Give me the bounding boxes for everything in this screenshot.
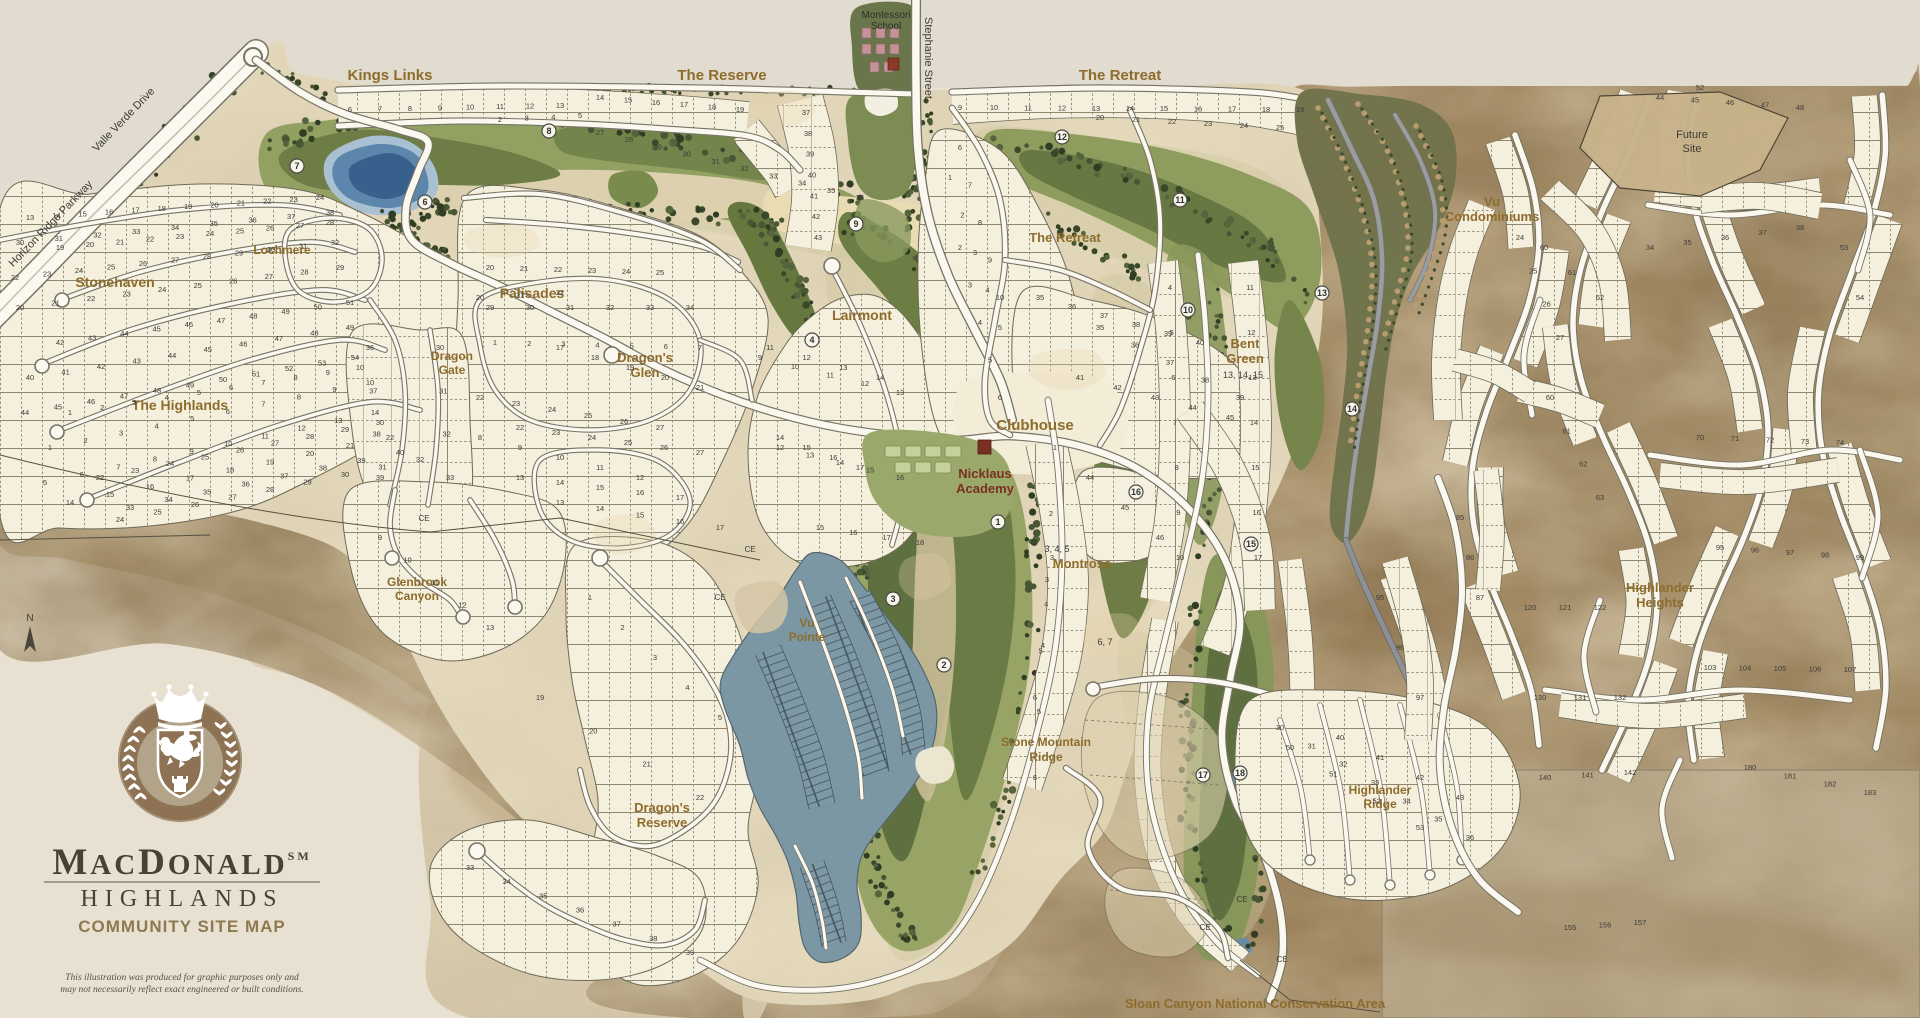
svg-text:43: 43 bbox=[1456, 793, 1464, 802]
svg-text:11: 11 bbox=[826, 371, 834, 380]
svg-text:34: 34 bbox=[686, 303, 694, 312]
svg-text:7: 7 bbox=[698, 343, 702, 352]
svg-text:4: 4 bbox=[809, 335, 814, 345]
svg-text:Highlander: Highlander bbox=[1349, 783, 1412, 797]
svg-text:29: 29 bbox=[341, 425, 349, 434]
svg-text:Heights: Heights bbox=[1636, 595, 1684, 610]
svg-text:27: 27 bbox=[1556, 333, 1564, 342]
svg-text:9: 9 bbox=[988, 256, 992, 265]
svg-text:12: 12 bbox=[636, 473, 644, 482]
svg-text:73: 73 bbox=[1801, 437, 1809, 446]
svg-text:Green: Green bbox=[1226, 351, 1264, 366]
svg-text:52: 52 bbox=[1373, 796, 1381, 805]
svg-text:1: 1 bbox=[995, 517, 1000, 527]
svg-text:MACDONALDSM: MACDONALDSM bbox=[52, 842, 311, 883]
svg-text:11: 11 bbox=[1024, 103, 1032, 112]
svg-text:Canyon: Canyon bbox=[395, 589, 439, 603]
svg-text:N: N bbox=[26, 613, 33, 624]
svg-text:25: 25 bbox=[201, 452, 209, 461]
svg-text:COMMUNITY SITE MAP: COMMUNITY SITE MAP bbox=[78, 917, 286, 936]
svg-text:47: 47 bbox=[1761, 101, 1769, 110]
svg-text:8: 8 bbox=[478, 433, 482, 442]
svg-text:15: 15 bbox=[79, 209, 87, 218]
svg-text:11: 11 bbox=[1175, 195, 1185, 205]
svg-text:43: 43 bbox=[814, 233, 822, 242]
svg-text:47: 47 bbox=[120, 392, 128, 401]
svg-text:15: 15 bbox=[1246, 539, 1256, 549]
svg-text:6: 6 bbox=[348, 105, 352, 114]
svg-text:8: 8 bbox=[294, 373, 298, 382]
svg-text:5: 5 bbox=[190, 414, 194, 423]
svg-text:44: 44 bbox=[168, 351, 176, 360]
svg-text:41: 41 bbox=[1376, 753, 1384, 762]
svg-text:15: 15 bbox=[816, 523, 824, 532]
svg-text:37: 37 bbox=[287, 212, 295, 221]
svg-text:34: 34 bbox=[1403, 796, 1411, 805]
svg-text:140: 140 bbox=[1539, 773, 1552, 782]
svg-text:38: 38 bbox=[649, 934, 657, 943]
svg-text:32: 32 bbox=[443, 430, 451, 439]
svg-text:CE: CE bbox=[418, 514, 429, 523]
svg-text:18: 18 bbox=[708, 103, 716, 112]
svg-text:70: 70 bbox=[1696, 433, 1704, 442]
svg-text:5: 5 bbox=[578, 111, 582, 120]
svg-text:38: 38 bbox=[319, 464, 327, 473]
svg-text:5: 5 bbox=[197, 388, 201, 397]
svg-text:48: 48 bbox=[249, 311, 257, 320]
svg-text:19: 19 bbox=[266, 457, 274, 466]
svg-text:23: 23 bbox=[552, 428, 560, 437]
svg-text:36: 36 bbox=[248, 216, 256, 225]
svg-text:130: 130 bbox=[1534, 693, 1547, 702]
svg-text:Academy: Academy bbox=[956, 481, 1015, 496]
svg-text:32: 32 bbox=[1339, 760, 1347, 769]
svg-text:15: 15 bbox=[866, 466, 874, 475]
svg-text:4: 4 bbox=[551, 112, 555, 121]
svg-text:22: 22 bbox=[96, 473, 104, 482]
svg-text:155: 155 bbox=[1564, 923, 1577, 932]
svg-text:62: 62 bbox=[1596, 293, 1604, 302]
svg-text:22: 22 bbox=[476, 393, 484, 402]
svg-text:25: 25 bbox=[1276, 123, 1284, 132]
svg-text:12: 12 bbox=[776, 443, 784, 452]
svg-text:34: 34 bbox=[1646, 243, 1654, 252]
svg-text:36: 36 bbox=[1068, 302, 1076, 311]
svg-text:32: 32 bbox=[416, 455, 424, 464]
svg-text:36: 36 bbox=[366, 343, 374, 352]
svg-text:may not necessarily reflect ex: may not necessarily reflect exact engine… bbox=[60, 984, 303, 995]
svg-text:14: 14 bbox=[776, 433, 784, 442]
svg-text:22: 22 bbox=[554, 265, 562, 274]
svg-text:CE: CE bbox=[1276, 955, 1287, 964]
svg-text:41: 41 bbox=[810, 191, 818, 200]
svg-text:Reserve: Reserve bbox=[637, 815, 688, 830]
svg-text:15: 15 bbox=[636, 511, 644, 520]
svg-text:12: 12 bbox=[458, 601, 466, 610]
svg-text:181: 181 bbox=[1784, 771, 1797, 780]
svg-text:31: 31 bbox=[566, 303, 574, 312]
svg-text:3: 3 bbox=[653, 653, 657, 662]
svg-text:45: 45 bbox=[1691, 96, 1699, 105]
svg-text:32: 32 bbox=[93, 231, 101, 240]
svg-text:36: 36 bbox=[1131, 341, 1139, 350]
svg-text:18: 18 bbox=[1235, 768, 1245, 778]
svg-text:87: 87 bbox=[1476, 593, 1484, 602]
svg-text:46: 46 bbox=[1156, 533, 1164, 542]
svg-text:37: 37 bbox=[280, 472, 288, 481]
svg-text:141: 141 bbox=[1581, 771, 1594, 780]
svg-text:10: 10 bbox=[1183, 305, 1193, 315]
svg-text:8: 8 bbox=[153, 455, 157, 464]
svg-text:28: 28 bbox=[203, 252, 211, 261]
svg-text:42: 42 bbox=[812, 212, 820, 221]
svg-text:35: 35 bbox=[1683, 238, 1691, 247]
svg-text:11: 11 bbox=[766, 343, 774, 352]
svg-text:25: 25 bbox=[584, 411, 592, 420]
svg-text:6: 6 bbox=[1033, 693, 1037, 702]
svg-text:9: 9 bbox=[518, 443, 522, 452]
svg-text:27: 27 bbox=[265, 272, 273, 281]
svg-text:60: 60 bbox=[1546, 393, 1554, 402]
svg-text:26: 26 bbox=[1543, 300, 1551, 309]
svg-text:28: 28 bbox=[625, 135, 633, 144]
svg-text:33: 33 bbox=[646, 303, 654, 312]
svg-text:14: 14 bbox=[1347, 404, 1357, 414]
svg-text:16: 16 bbox=[636, 488, 644, 497]
svg-text:17: 17 bbox=[186, 474, 194, 483]
svg-text:2: 2 bbox=[960, 211, 964, 220]
svg-text:14: 14 bbox=[596, 504, 604, 513]
svg-text:99: 99 bbox=[1856, 553, 1864, 562]
svg-text:Vu: Vu bbox=[1484, 194, 1500, 209]
svg-text:21: 21 bbox=[346, 441, 354, 450]
svg-text:41: 41 bbox=[1076, 373, 1084, 382]
svg-text:107: 107 bbox=[1844, 665, 1857, 674]
svg-text:21: 21 bbox=[696, 383, 704, 392]
svg-text:13: 13 bbox=[806, 451, 814, 460]
svg-text:3: 3 bbox=[132, 398, 136, 407]
svg-text:26: 26 bbox=[266, 224, 274, 233]
svg-text:3: 3 bbox=[968, 281, 972, 290]
svg-text:30: 30 bbox=[436, 343, 444, 352]
svg-text:14: 14 bbox=[1250, 418, 1258, 427]
svg-text:31: 31 bbox=[299, 242, 307, 251]
svg-text:120: 120 bbox=[1524, 603, 1537, 612]
svg-text:37: 37 bbox=[1758, 228, 1766, 237]
svg-text:35: 35 bbox=[827, 186, 835, 195]
svg-text:26: 26 bbox=[620, 417, 628, 426]
svg-text:96: 96 bbox=[1751, 546, 1759, 555]
svg-text:10: 10 bbox=[224, 439, 232, 448]
svg-text:39: 39 bbox=[806, 150, 814, 159]
svg-text:26: 26 bbox=[236, 446, 244, 455]
svg-text:16: 16 bbox=[105, 208, 113, 217]
svg-text:9: 9 bbox=[958, 103, 962, 112]
svg-text:Pointe: Pointe bbox=[789, 630, 826, 644]
svg-text:20: 20 bbox=[589, 726, 597, 735]
svg-text:48: 48 bbox=[1796, 103, 1804, 112]
svg-text:16: 16 bbox=[1194, 104, 1202, 113]
svg-text:42: 42 bbox=[1416, 773, 1424, 782]
svg-text:54: 54 bbox=[351, 353, 359, 362]
svg-text:43: 43 bbox=[133, 356, 141, 365]
svg-text:26: 26 bbox=[660, 443, 668, 452]
svg-text:18: 18 bbox=[1262, 105, 1270, 114]
svg-text:36: 36 bbox=[242, 479, 250, 488]
svg-text:10: 10 bbox=[403, 556, 411, 565]
svg-text:13: 13 bbox=[1092, 104, 1100, 113]
svg-text:60: 60 bbox=[1540, 243, 1548, 252]
svg-text:86: 86 bbox=[1466, 553, 1474, 562]
svg-text:Ridge: Ridge bbox=[1029, 750, 1063, 764]
svg-text:39: 39 bbox=[357, 456, 365, 465]
svg-text:24: 24 bbox=[166, 459, 174, 468]
svg-text:Palisades: Palisades bbox=[500, 285, 565, 301]
svg-text:25: 25 bbox=[107, 263, 115, 272]
svg-text:24: 24 bbox=[622, 267, 630, 276]
svg-text:4: 4 bbox=[1168, 283, 1172, 292]
svg-text:16: 16 bbox=[146, 482, 154, 491]
svg-text:19: 19 bbox=[736, 105, 744, 114]
svg-text:5: 5 bbox=[1039, 646, 1043, 655]
svg-text:Gate: Gate bbox=[439, 363, 466, 377]
svg-text:23: 23 bbox=[588, 266, 596, 275]
svg-text:44: 44 bbox=[120, 329, 128, 338]
svg-text:20: 20 bbox=[476, 293, 484, 302]
svg-text:2: 2 bbox=[620, 623, 624, 632]
svg-text:13: 13 bbox=[26, 213, 34, 222]
svg-text:71: 71 bbox=[1731, 434, 1739, 443]
svg-text:11: 11 bbox=[596, 463, 604, 472]
svg-text:23: 23 bbox=[1204, 119, 1212, 128]
svg-text:30: 30 bbox=[376, 418, 384, 427]
svg-text:1: 1 bbox=[588, 593, 592, 602]
svg-text:6: 6 bbox=[422, 197, 427, 207]
svg-text:25: 25 bbox=[153, 508, 161, 517]
svg-text:4: 4 bbox=[155, 421, 159, 430]
svg-text:50: 50 bbox=[219, 375, 227, 384]
svg-text:38: 38 bbox=[1132, 320, 1140, 329]
svg-text:16: 16 bbox=[896, 473, 904, 482]
svg-text:7: 7 bbox=[968, 181, 972, 190]
svg-text:13: 13 bbox=[1249, 373, 1257, 382]
svg-text:5: 5 bbox=[998, 323, 1002, 332]
svg-text:16: 16 bbox=[676, 517, 684, 526]
svg-text:38: 38 bbox=[326, 208, 334, 217]
svg-text:48: 48 bbox=[153, 386, 161, 395]
svg-text:The Highlands: The Highlands bbox=[132, 397, 229, 413]
svg-text:46: 46 bbox=[1726, 98, 1734, 107]
svg-text:35: 35 bbox=[1096, 323, 1104, 332]
svg-text:51: 51 bbox=[1329, 770, 1337, 779]
svg-text:24: 24 bbox=[1240, 121, 1248, 130]
svg-text:46: 46 bbox=[87, 397, 95, 406]
svg-text:48: 48 bbox=[310, 329, 318, 338]
svg-text:61: 61 bbox=[1568, 268, 1576, 277]
svg-text:14: 14 bbox=[52, 211, 60, 220]
svg-text:20: 20 bbox=[486, 263, 494, 272]
svg-text:103: 103 bbox=[1704, 663, 1717, 672]
svg-text:4: 4 bbox=[985, 286, 989, 295]
svg-text:32: 32 bbox=[740, 164, 748, 173]
svg-text:40: 40 bbox=[396, 448, 404, 457]
svg-text:Future: Future bbox=[1676, 129, 1708, 141]
svg-text:85: 85 bbox=[1456, 513, 1464, 522]
svg-text:2: 2 bbox=[1049, 509, 1053, 518]
svg-text:10: 10 bbox=[791, 362, 799, 371]
svg-text:3: 3 bbox=[561, 340, 565, 349]
svg-text:14: 14 bbox=[556, 478, 564, 487]
svg-text:182: 182 bbox=[1824, 780, 1837, 789]
svg-text:12: 12 bbox=[803, 353, 811, 362]
svg-text:17: 17 bbox=[1254, 553, 1262, 562]
svg-text:3: 3 bbox=[890, 594, 895, 604]
svg-text:72: 72 bbox=[1766, 436, 1774, 445]
svg-text:10: 10 bbox=[996, 293, 1004, 302]
svg-text:45: 45 bbox=[54, 403, 62, 412]
svg-text:6: 6 bbox=[80, 470, 84, 479]
svg-text:7: 7 bbox=[1173, 418, 1177, 427]
svg-text:46: 46 bbox=[239, 340, 247, 349]
svg-text:Montrose: Montrose bbox=[1053, 556, 1112, 571]
svg-text:106: 106 bbox=[1809, 665, 1822, 674]
svg-text:29: 29 bbox=[303, 478, 311, 487]
svg-text:29: 29 bbox=[336, 263, 344, 272]
svg-text:7: 7 bbox=[294, 161, 299, 171]
svg-text:25: 25 bbox=[236, 226, 244, 235]
svg-text:6: 6 bbox=[664, 342, 668, 351]
svg-text:39: 39 bbox=[686, 948, 694, 957]
svg-text:35: 35 bbox=[203, 487, 211, 496]
svg-text:20: 20 bbox=[306, 449, 314, 458]
svg-text:Dragon's: Dragon's bbox=[634, 800, 690, 815]
svg-text:4: 4 bbox=[1044, 600, 1048, 609]
svg-text:22: 22 bbox=[146, 235, 154, 244]
svg-text:47: 47 bbox=[217, 316, 225, 325]
svg-text:45: 45 bbox=[1226, 413, 1234, 422]
svg-text:10: 10 bbox=[356, 363, 364, 372]
svg-text:3: 3 bbox=[1050, 553, 1054, 562]
svg-text:Condominiums: Condominiums bbox=[1445, 209, 1540, 224]
svg-text:28: 28 bbox=[266, 485, 274, 494]
svg-text:2: 2 bbox=[498, 115, 502, 124]
svg-text:21: 21 bbox=[520, 264, 528, 273]
svg-text:School: School bbox=[871, 21, 902, 32]
svg-text:24: 24 bbox=[588, 433, 596, 442]
svg-text:Stonehaven: Stonehaven bbox=[75, 274, 154, 290]
svg-text:37: 37 bbox=[802, 108, 810, 117]
svg-text:37: 37 bbox=[1100, 311, 1108, 320]
svg-text:34: 34 bbox=[171, 223, 179, 232]
svg-text:12: 12 bbox=[1058, 104, 1066, 113]
svg-text:8: 8 bbox=[1175, 463, 1179, 472]
svg-text:24: 24 bbox=[548, 405, 556, 414]
svg-text:54: 54 bbox=[1856, 293, 1864, 302]
svg-text:27: 27 bbox=[596, 128, 604, 137]
svg-text:27: 27 bbox=[696, 448, 704, 457]
svg-text:23: 23 bbox=[123, 290, 131, 299]
svg-text:38: 38 bbox=[1796, 223, 1804, 232]
svg-text:12: 12 bbox=[526, 102, 534, 111]
svg-text:14: 14 bbox=[596, 93, 604, 102]
svg-text:62: 62 bbox=[1579, 460, 1587, 469]
svg-text:Bent: Bent bbox=[1231, 336, 1261, 351]
svg-text:39: 39 bbox=[1236, 393, 1244, 402]
svg-text:33: 33 bbox=[1371, 778, 1379, 787]
svg-text:97: 97 bbox=[1786, 548, 1794, 557]
svg-text:14: 14 bbox=[836, 458, 844, 467]
svg-text:38: 38 bbox=[1201, 376, 1209, 385]
svg-text:Clubhouse: Clubhouse bbox=[996, 417, 1074, 434]
svg-text:18: 18 bbox=[591, 353, 599, 362]
svg-text:46: 46 bbox=[185, 320, 193, 329]
svg-text:26: 26 bbox=[139, 259, 147, 268]
svg-text:7: 7 bbox=[378, 104, 382, 113]
svg-text:14: 14 bbox=[371, 408, 379, 417]
svg-text:3: 3 bbox=[1045, 575, 1049, 584]
svg-text:16: 16 bbox=[1253, 508, 1261, 517]
svg-text:15: 15 bbox=[1251, 463, 1259, 472]
svg-text:36: 36 bbox=[856, 193, 864, 202]
svg-text:105: 105 bbox=[1774, 664, 1787, 673]
svg-text:21: 21 bbox=[51, 299, 59, 308]
svg-text:18: 18 bbox=[226, 466, 234, 475]
svg-text:22: 22 bbox=[1168, 117, 1176, 126]
svg-text:18: 18 bbox=[158, 204, 166, 213]
svg-text:The Retreat: The Retreat bbox=[1079, 67, 1162, 84]
svg-text:31: 31 bbox=[711, 157, 719, 166]
svg-text:17: 17 bbox=[856, 463, 864, 472]
svg-text:12: 12 bbox=[298, 424, 306, 433]
svg-text:98: 98 bbox=[1821, 551, 1829, 560]
svg-text:9: 9 bbox=[853, 219, 858, 229]
svg-text:12: 12 bbox=[1247, 328, 1255, 337]
svg-text:38: 38 bbox=[373, 430, 381, 439]
svg-text:17: 17 bbox=[716, 523, 724, 532]
svg-text:33: 33 bbox=[769, 171, 777, 180]
svg-text:156: 156 bbox=[1599, 921, 1612, 930]
svg-text:22: 22 bbox=[87, 294, 95, 303]
svg-text:The Retreat: The Retreat bbox=[1029, 230, 1101, 245]
svg-text:95: 95 bbox=[1716, 543, 1724, 552]
svg-text:9: 9 bbox=[332, 385, 336, 394]
svg-text:12: 12 bbox=[861, 379, 869, 388]
svg-text:19: 19 bbox=[536, 693, 544, 702]
svg-text:32: 32 bbox=[331, 238, 339, 247]
svg-text:10: 10 bbox=[1176, 553, 1184, 562]
svg-text:97: 97 bbox=[1416, 693, 1424, 702]
svg-text:15: 15 bbox=[624, 95, 632, 104]
svg-text:25: 25 bbox=[1529, 266, 1537, 275]
svg-text:20: 20 bbox=[661, 373, 669, 382]
svg-text:49: 49 bbox=[186, 381, 194, 390]
svg-text:5: 5 bbox=[1037, 707, 1041, 716]
svg-text:42: 42 bbox=[1113, 383, 1121, 392]
svg-text:32: 32 bbox=[606, 303, 614, 312]
svg-text:35: 35 bbox=[210, 219, 218, 228]
svg-text:44: 44 bbox=[1086, 473, 1094, 482]
svg-text:19: 19 bbox=[1296, 105, 1304, 114]
svg-text:6: 6 bbox=[1171, 373, 1175, 382]
svg-text:This illustration was produced: This illustration was produced for graph… bbox=[65, 972, 299, 983]
svg-text:6: 6 bbox=[229, 383, 233, 392]
svg-text:Montessori: Montessori bbox=[862, 10, 911, 21]
svg-text:50: 50 bbox=[314, 302, 322, 311]
svg-text:49: 49 bbox=[281, 307, 289, 316]
svg-text:53: 53 bbox=[318, 359, 326, 368]
svg-text:45: 45 bbox=[204, 345, 212, 354]
svg-text:Stone Mountain: Stone Mountain bbox=[1001, 735, 1091, 749]
